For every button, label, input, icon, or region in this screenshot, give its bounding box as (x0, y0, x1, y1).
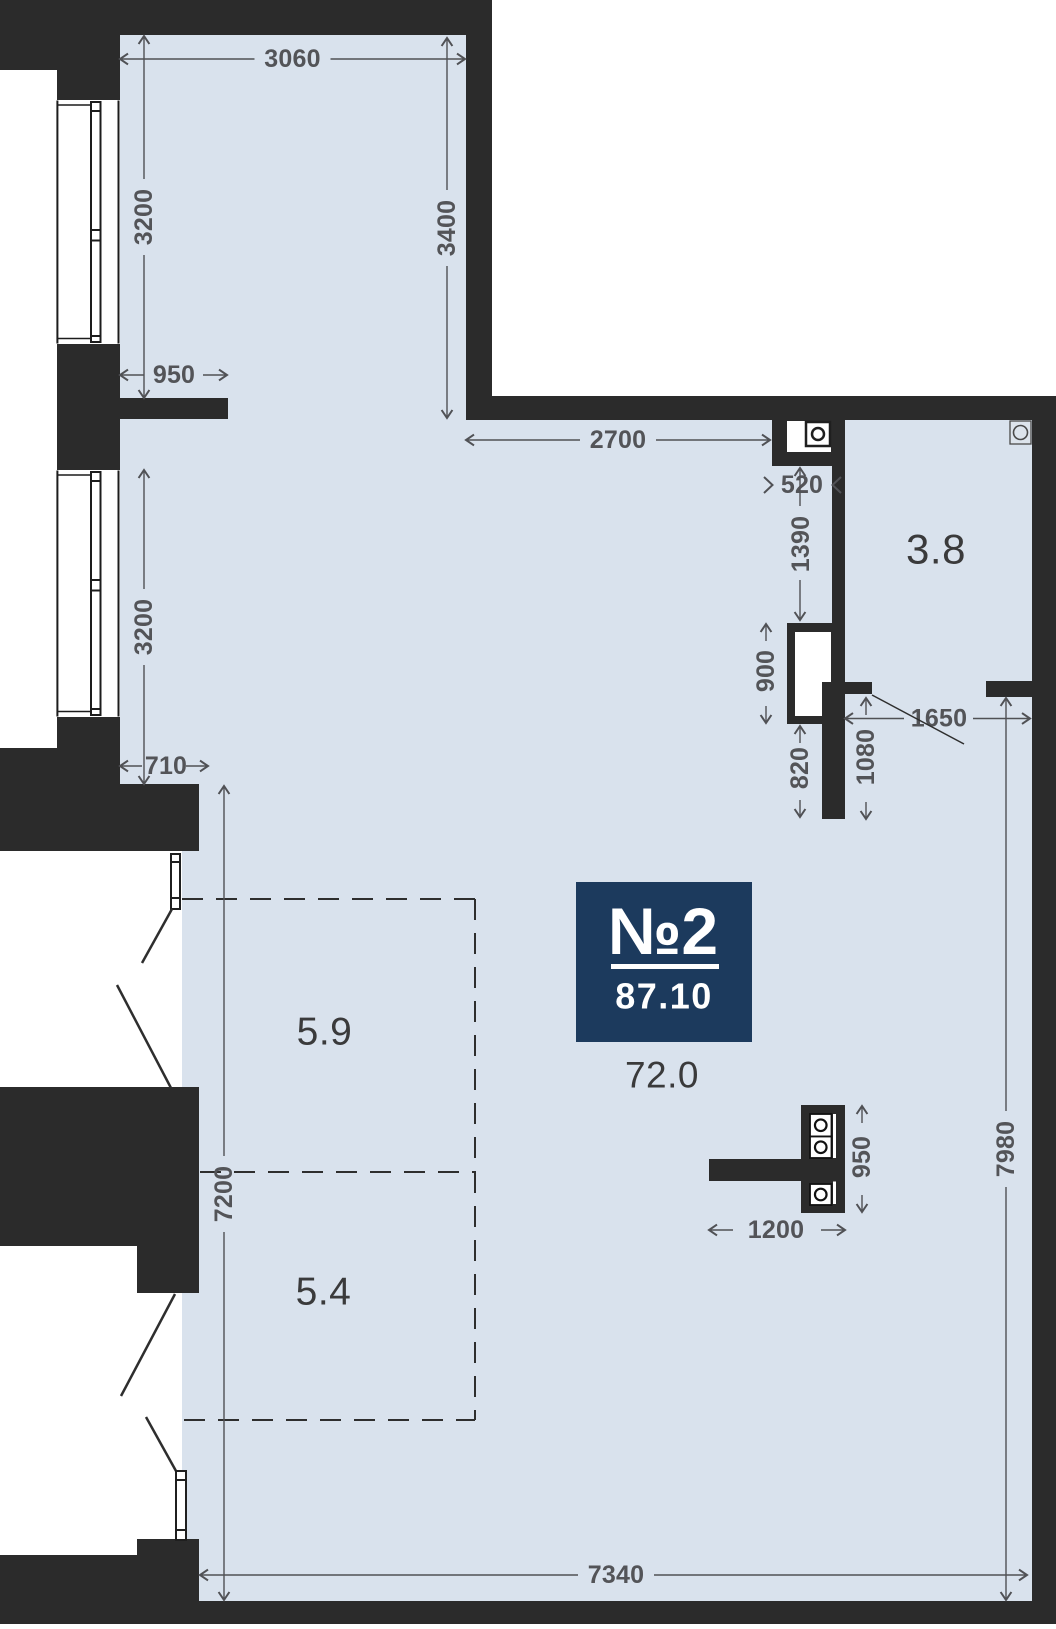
svg-text:87.10: 87.10 (615, 976, 713, 1017)
svg-text:1200: 1200 (748, 1216, 804, 1244)
svg-text:1080: 1080 (852, 729, 880, 785)
svg-text:7200: 7200 (210, 1166, 238, 1222)
svg-text:950: 950 (153, 361, 195, 389)
svg-text:710: 710 (145, 752, 187, 780)
svg-text:1650: 1650 (911, 705, 967, 733)
svg-text:7340: 7340 (588, 1561, 644, 1589)
svg-text:3200: 3200 (130, 599, 158, 655)
svg-text:7980: 7980 (992, 1121, 1020, 1177)
svg-text:3.8: 3.8 (906, 526, 966, 573)
svg-text:72.0: 72.0 (625, 1055, 699, 1096)
svg-text:2700: 2700 (590, 426, 646, 454)
svg-text:3060: 3060 (264, 45, 320, 73)
svg-text:950: 950 (848, 1136, 876, 1178)
svg-text:820: 820 (786, 747, 814, 789)
svg-text:520: 520 (781, 471, 823, 499)
svg-text:3400: 3400 (433, 200, 461, 256)
svg-text:5.9: 5.9 (297, 1011, 353, 1054)
svg-text:3200: 3200 (130, 189, 158, 245)
svg-text:№2: №2 (608, 894, 718, 968)
svg-text:900: 900 (752, 650, 780, 692)
svg-text:5.4: 5.4 (296, 1271, 352, 1314)
svg-text:1390: 1390 (787, 516, 815, 572)
